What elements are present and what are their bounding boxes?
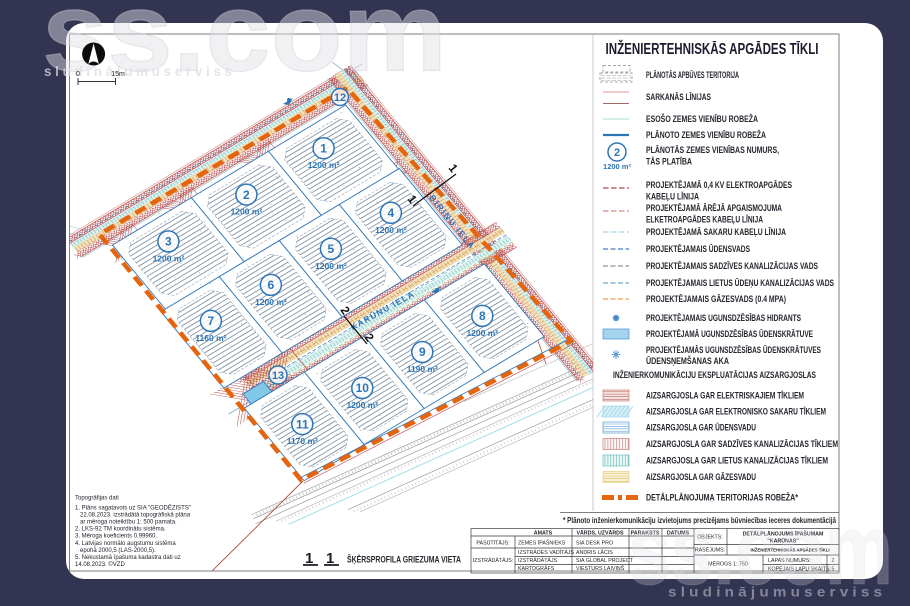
- svg-text:AIZSARGJOSLA GAR ELEKTRISKAJIE: AIZSARGJOSLA GAR ELEKTRISKAJIEM TĪKLIEM: [646, 391, 804, 401]
- svg-text:SIA GLOBAL PROJECT: SIA GLOBAL PROJECT: [576, 558, 634, 564]
- svg-text:AIZSARGJOSLA GAR LIETUS KANALI: AIZSARGJOSLA GAR LIETUS KANALIZĀCIJAS TĪ…: [646, 456, 828, 466]
- svg-text:7: 7: [208, 314, 215, 328]
- svg-text:PROJEKTĒJAMAIS UGUNSDZĒSĪBAS H: PROJEKTĒJAMAIS UGUNSDZĒSĪBAS HIDRANTS: [646, 313, 801, 323]
- svg-text:14.08.2023. ©VZD: 14.08.2023. ©VZD: [75, 561, 125, 568]
- svg-text:IZSTRĀDĀTĀJS: IZSTRĀDĀTĀJS: [518, 557, 558, 564]
- svg-text:1200 m²: 1200 m²: [315, 261, 347, 271]
- svg-text:ar mēroga noteiktību 1: 500 pa: ar mēroga noteiktību 1: 500 pamata.: [80, 520, 177, 526]
- svg-text:PROJEKTĒJAMĀ 0,4 KV ELEKTROAPG: PROJEKTĒJAMĀ 0,4 KV ELEKTROAPGĀDES: [646, 180, 792, 190]
- svg-text:ŪDENSŅEMŠANAS AKA: ŪDENSŅEMŠANAS AKA: [646, 355, 729, 366]
- svg-text:SARKANĀS LĪNIJAS: SARKANĀS LĪNIJAS: [646, 92, 711, 102]
- svg-text:PROJEKTĒJAMĀ ĀRĒJĀ APGAISMOJUM: PROJEKTĒJAMĀ ĀRĒJĀ APGAISMOJUMA: [646, 203, 782, 213]
- svg-text:s l u d i n ā j u m u s e r: s l u d i n ā j u m u s e r v i s s: [44, 64, 232, 79]
- svg-text:PROJEKTĒJAMĀ SAKARU KABEĻU LĪN: PROJEKTĒJAMĀ SAKARU KABEĻU LĪNIJA: [646, 227, 786, 237]
- svg-text:1. Plāns sagatavots uz SIA "GE: 1. Plāns sagatavots uz SIA "GEODĒZISTS": [75, 505, 191, 512]
- svg-text:IZSTRĀDES VADĪTĀJS: IZSTRĀDES VADĪTĀJS: [518, 549, 575, 556]
- svg-text:TĀS PLATĪBA: TĀS PLATĪBA: [646, 157, 692, 167]
- svg-text:s l u d i n ā j u m u s e r: s l u d i n ā j u m u s e r v i s s: [668, 584, 882, 600]
- svg-text:4. Latvijas normālo augstumu s: 4. Latvijas normālo augstumu sistēma: [75, 541, 176, 547]
- svg-text:1170 m²: 1170 m²: [287, 436, 318, 446]
- svg-text:PROJEKTĒJAMAIS ŪDENSVADS: PROJEKTĒJAMAIS ŪDENSVADS: [646, 244, 750, 254]
- svg-text:3. Mēroga koeficients 0.99960.: 3. Mēroga koeficients 0.99960.: [75, 534, 157, 540]
- svg-text:KABEĻU LĪNIJA: KABEĻU LĪNIJA: [646, 192, 699, 202]
- svg-text:ŠĶĒRSPROFILA GRIEZUMA VIETA: ŠĶĒRSPROFILA GRIEZUMA VIETA: [347, 554, 461, 566]
- svg-text:AIZSARGJOSLA GAR GĀZESVADU: AIZSARGJOSLA GAR GĀZESVADU: [646, 472, 756, 482]
- svg-text:epohā 2000,5 (LAS-2000,5).: epohā 2000,5 (LAS-2000,5).: [80, 548, 156, 554]
- svg-text:ZEMES ĪPAŠNIEKS: ZEMES ĪPAŠNIEKS: [518, 540, 566, 547]
- svg-text:PLĀNOTĀS ZEMES VIENĪBAS NUMURS: PLĀNOTĀS ZEMES VIENĪBAS NUMURS,: [646, 145, 779, 155]
- svg-text:Topogrāfijas dati: Topogrāfijas dati: [75, 496, 119, 502]
- svg-text:3: 3: [165, 235, 172, 249]
- svg-text:PROJEKTĒJAMAIS SADZĪVES KANALI: PROJEKTĒJAMAIS SADZĪVES KANALIZĀCIJAS VA…: [646, 261, 818, 271]
- svg-text:4: 4: [388, 206, 395, 220]
- svg-text:ELKETROAPGĀDES KABEĻU LĪNIJA: ELKETROAPGĀDES KABEĻU LĪNIJA: [646, 215, 763, 225]
- svg-text:INŽENIERKOMUNIKĀCIJU EKSPLUATĀ: INŽENIERKOMUNIKĀCIJU EKSPLUATĀCIJAS AIZS…: [613, 369, 816, 380]
- svg-text:1200 m²: 1200 m²: [255, 297, 287, 307]
- svg-text:9: 9: [419, 345, 426, 359]
- svg-text:PLĀNOTO ZEMES VIENĪBU ROBEŽA: PLĀNOTO ZEMES VIENĪBU ROBEŽA: [646, 129, 766, 140]
- svg-text:IZSTRĀDĀTĀJS:: IZSTRĀDĀTĀJS:: [473, 557, 514, 564]
- svg-text:1200 m²: 1200 m²: [346, 400, 378, 410]
- svg-text:22.08.2023. izstrādātā topogrā: 22.08.2023. izstrādātā topogrāfiskā plān…: [80, 513, 191, 519]
- svg-text:10: 10: [356, 381, 370, 395]
- svg-text:1160 m²: 1160 m²: [195, 333, 226, 343]
- svg-text:0: 0: [76, 71, 80, 78]
- svg-text:PROJEKTĒJAMAIS LIETUS ŪDEŅU KA: PROJEKTĒJAMAIS LIETUS ŪDEŅU KANALIZĀCIJA…: [646, 278, 834, 288]
- svg-text:5. Nekustamā īpašuma kadastra: 5. Nekustamā īpašuma kadastra dati uz: [75, 555, 181, 561]
- svg-text:1200 m²: 1200 m²: [466, 328, 498, 338]
- svg-text:ANDRIS LĀCIS: ANDRIS LĀCIS: [576, 549, 613, 556]
- svg-text:5: 5: [328, 242, 335, 256]
- svg-text:PROJEKTĒJAMĀS UGUNSDZĒSĪBAS ŪD: PROJEKTĒJAMĀS UGUNSDZĒSĪBAS ŪDENSKRĀTUVE…: [646, 345, 821, 355]
- svg-text:AMATS: AMATS: [534, 530, 553, 536]
- svg-text:VIESTURS LAIVIŅŠ: VIESTURS LAIVIŅŠ: [576, 565, 625, 572]
- svg-text:2: 2: [243, 188, 250, 202]
- svg-text:PROJEKTĒJAMĀ UGUNSDZĒSĪBAS ŪDE: PROJEKTĒJAMĀ UGUNSDZĒSĪBAS ŪDENSKRĀTUVE: [646, 329, 813, 339]
- svg-text:11: 11: [296, 417, 309, 431]
- svg-text:1200 m²: 1200 m²: [308, 160, 340, 170]
- svg-text:13: 13: [272, 370, 284, 382]
- svg-text:ESOŠO ZEMES VIENĪBU ROBEŽA: ESOŠO ZEMES VIENĪBU ROBEŽA: [646, 113, 758, 124]
- svg-text:8: 8: [479, 309, 486, 323]
- svg-text:SIA DESK PRO: SIA DESK PRO: [576, 541, 613, 547]
- svg-text:6: 6: [268, 278, 275, 292]
- svg-text:15m: 15m: [111, 71, 125, 78]
- svg-text:2: 2: [614, 147, 620, 159]
- svg-text:1200 m²: 1200 m²: [153, 253, 185, 263]
- svg-text:INŽENIERTEHNISKĀS APGĀDES TĪKL: INŽENIERTEHNISKĀS APGĀDES TĪKLI: [606, 40, 819, 58]
- svg-text:1200 m²: 1200 m²: [603, 162, 631, 171]
- svg-text:PLĀNOTĀS APBŪVES TERITORIJA: PLĀNOTĀS APBŪVES TERITORIJA: [646, 70, 739, 80]
- svg-text:1200 m²: 1200 m²: [231, 207, 263, 217]
- svg-text:KARTOGRĀFS: KARTOGRĀFS: [518, 565, 555, 572]
- svg-text:AIZSARGJOSLA GAR SADZĪVES KANA: AIZSARGJOSLA GAR SADZĪVES KANALIZĀCIJAS …: [646, 439, 838, 449]
- svg-text:2. LKS-92 TM koordinātu sistēm: 2. LKS-92 TM koordinātu sistēma.: [75, 527, 166, 533]
- svg-text:1190 m²: 1190 m²: [407, 364, 438, 374]
- svg-text:PASŪTĪTĀJS:: PASŪTĪTĀJS:: [476, 540, 509, 547]
- svg-text:AIZSARGJOSLA GAR ŪDENSVADU: AIZSARGJOSLA GAR ŪDENSVADU: [646, 423, 756, 433]
- svg-text:1200 m²: 1200 m²: [375, 225, 407, 235]
- svg-text:VĀRDS, UZVĀRDS: VĀRDS, UZVĀRDS: [576, 529, 624, 536]
- svg-text:PROJEKTĒJAMAIS GĀZESVADS (0.4: PROJEKTĒJAMAIS GĀZESVADS (0.4 MPA): [646, 294, 786, 304]
- svg-text:AIZSARGJOSLA GAR ELEKTRONISKO: AIZSARGJOSLA GAR ELEKTRONISKO SAKARU TĪK…: [646, 407, 826, 417]
- svg-text:1: 1: [320, 141, 327, 155]
